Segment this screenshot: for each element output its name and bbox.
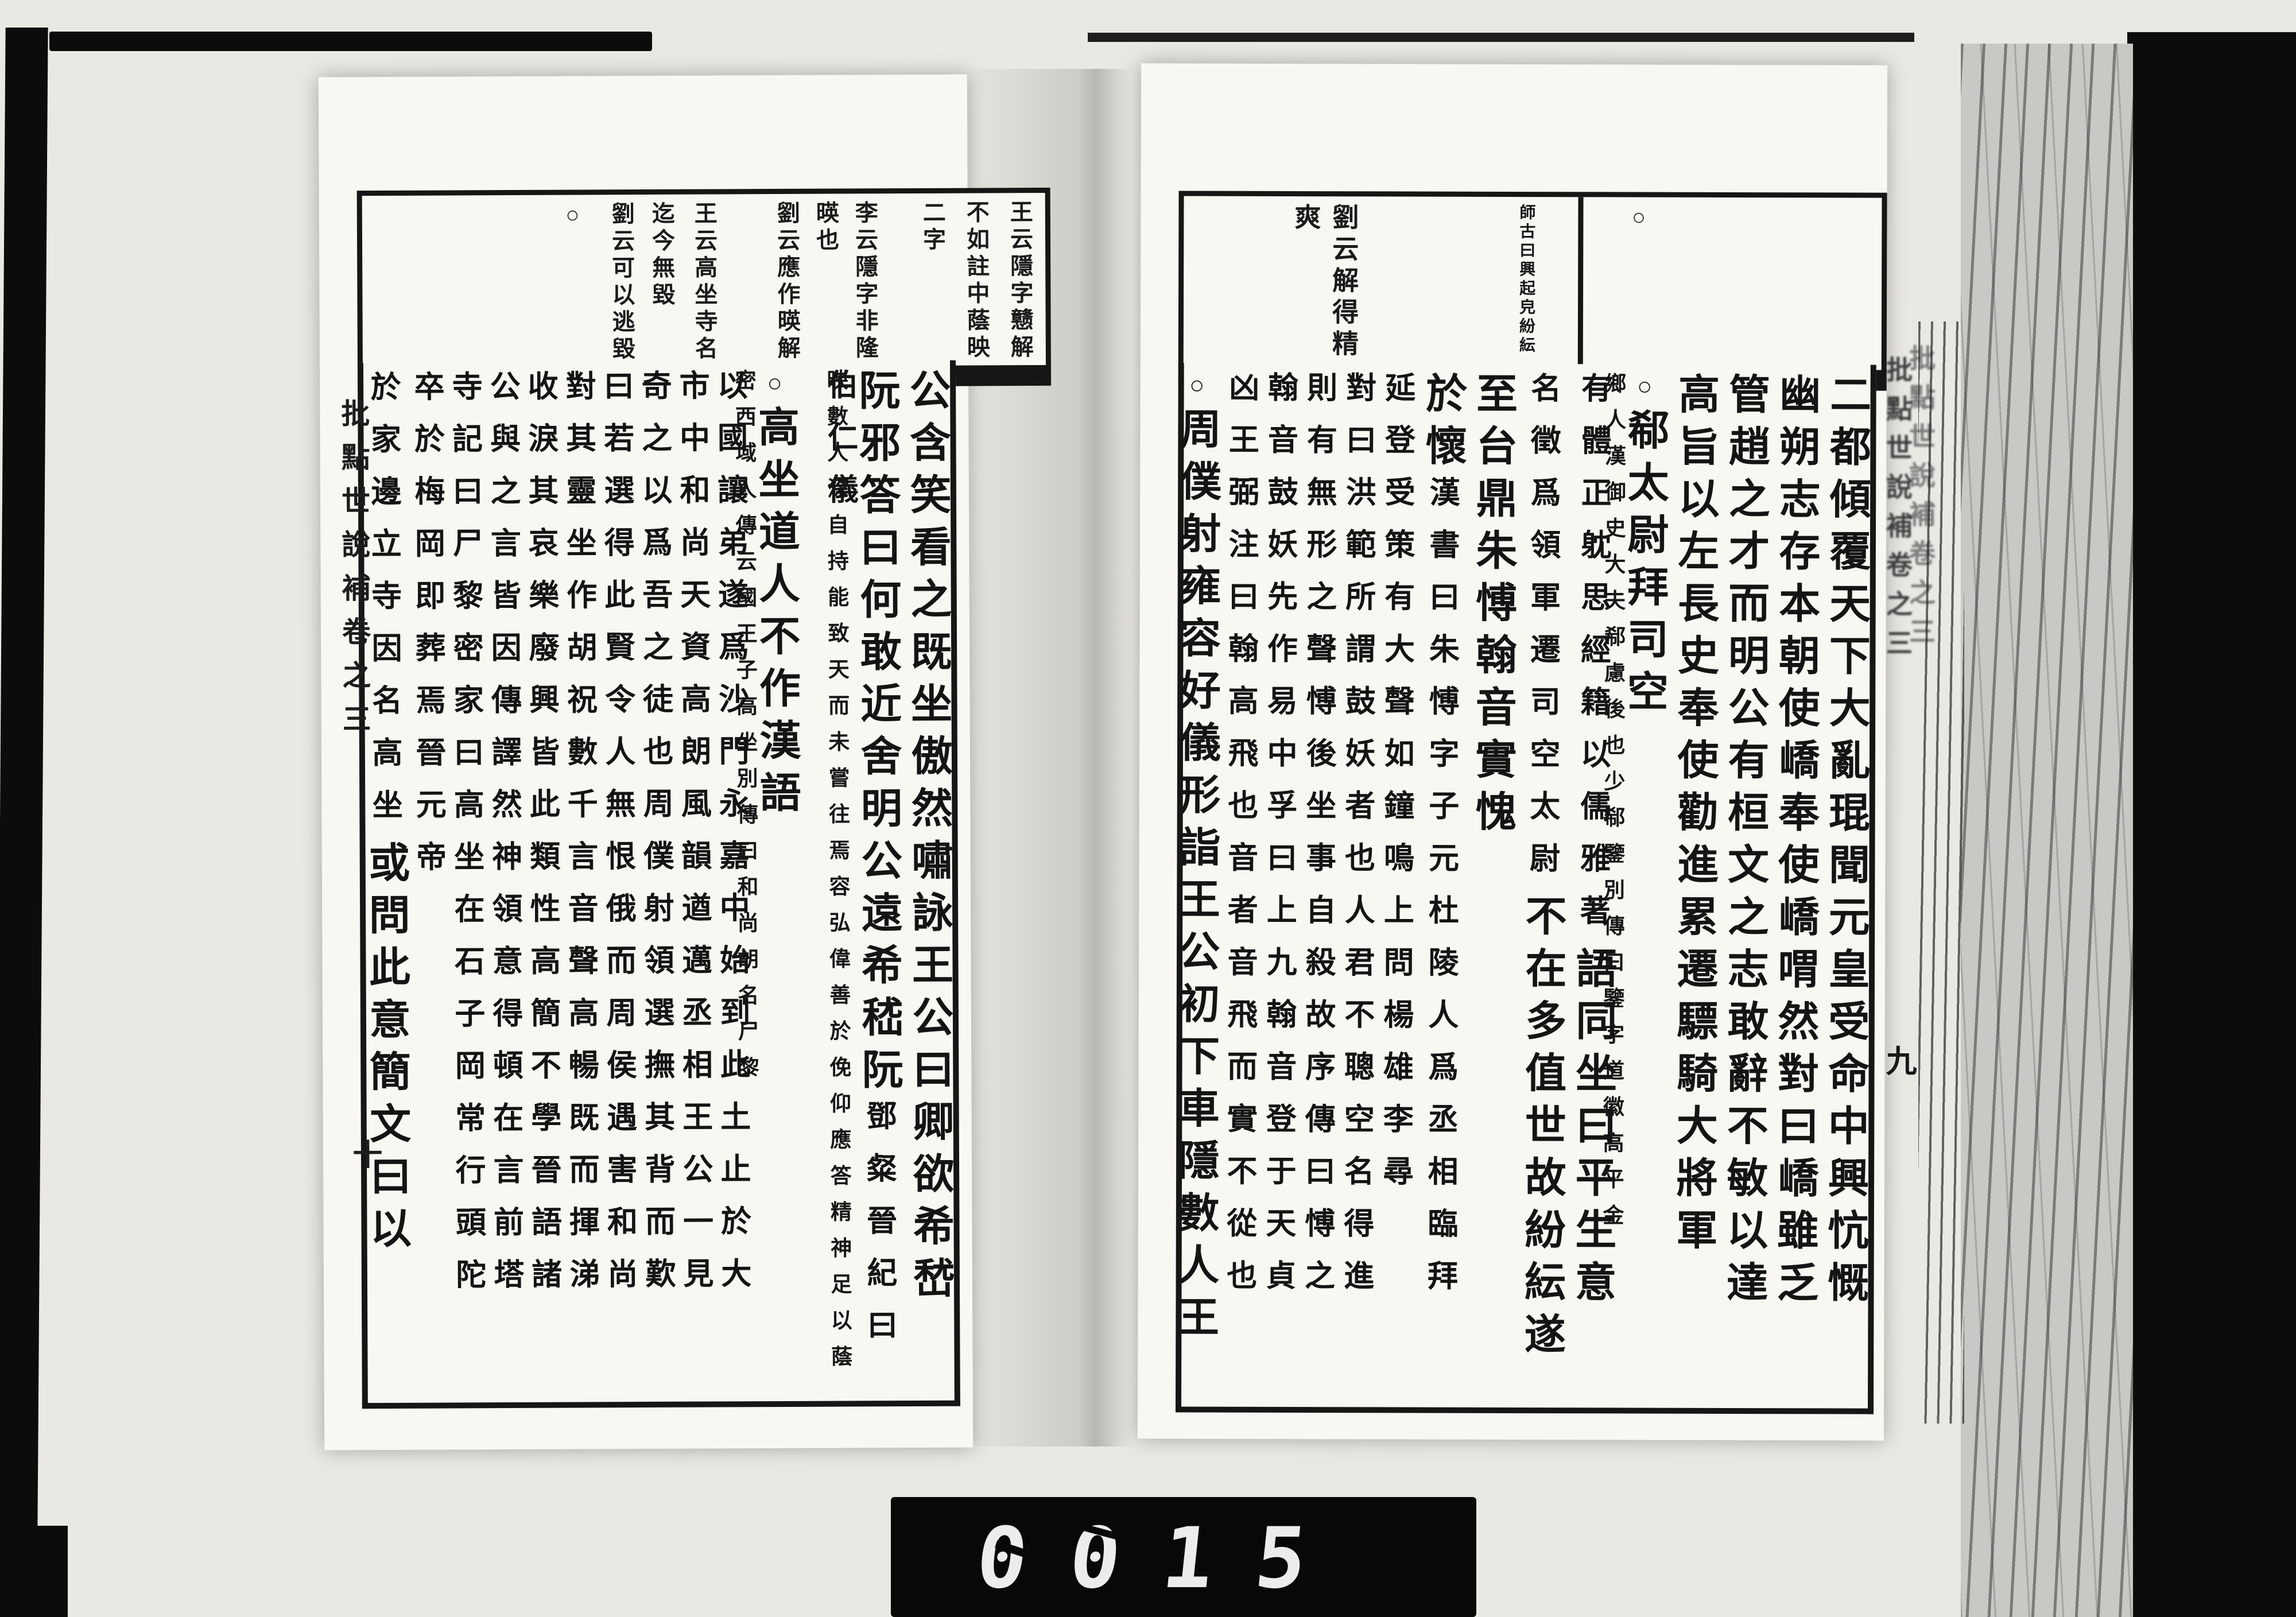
annotation-ring: ○ — [559, 201, 586, 227]
margin-annotation: 紛紜師古曰興起皃 — [1518, 204, 1538, 355]
right-folding-margin-title-ghost: 批點世說補卷之三 — [1901, 344, 1939, 657]
text-column: 市中和尚天資高朗風韻遒邁丞相王公一見 — [669, 370, 711, 1397]
text-column: 名徵爲領軍遷司空太尉不在多值世故紛紜遂 — [1511, 372, 1564, 1403]
previous-leaf-edge: 批點世說補卷之三 批點世說補卷之三 九 — [1876, 321, 1968, 1424]
commentary-segment: 對曰洪範所謂鼓妖者也人君不聰空名得進 — [1339, 371, 1375, 1312]
text-column: 幽朔志存本朝使嶠奉使嶠喟然對曰嶠雖乏 — [1763, 373, 1817, 1403]
margin-annotation: 王云隱字戆解 — [1003, 200, 1037, 362]
film-edge-right-area — [2127, 32, 2296, 1617]
commentary-segment: 市中和尚天資高朗風韻遒邁丞相王公一見 — [675, 370, 712, 1310]
main-text-segment: 至台鼎朱愽翰音實愧 — [1469, 372, 1516, 842]
margin-annotation: 李云隱字非隆 — [848, 200, 882, 362]
main-text-segment: 二都傾覆天下大亂琨聞元皇受命中興忼慨 — [1821, 373, 1869, 1313]
text-column: 對其靈坐作胡祝數千言音聲高暢既而揮涕 — [555, 370, 598, 1397]
text-column: 奇之以爲吾之徒也周僕射領選撫其背而歎 — [631, 370, 673, 1397]
commentary-segment: 卒於梅岡即葬焉晉元帝 — [410, 371, 445, 893]
main-text-segment: 管趙之才而明公有桓文之志敢辭不敏以達 — [1720, 373, 1768, 1313]
text-column: 公與之言皆因傳譯然神領意得頓在言前塔 — [479, 370, 522, 1398]
story-start-ring: ○ — [761, 369, 789, 405]
commentary-segment: 寺記曰尸黎密家曰高坐在石子岡常行頭陀 — [448, 370, 485, 1310]
interlinear-note-line: 映數人深自持能致天而未嘗往焉 — [820, 369, 848, 875]
commentary-segment: 公與之言皆因傳譯然神領意得頓在言前塔 — [486, 370, 523, 1310]
scan-streak-top-right — [1088, 33, 1914, 42]
main-text-segment: 不在多值世故紛紜遂 — [1518, 894, 1565, 1364]
text-column: 卒於梅岡即葬焉晉元帝 — [404, 371, 446, 1398]
main-text-segment: 或問此意簡文曰以 — [362, 841, 410, 1259]
text-column: 以國讓弟遂爲沙門永嘉中始到此土止於大 — [707, 369, 749, 1397]
text-column: 至台鼎朱愽翰音實愧 — [1460, 372, 1514, 1403]
commentary-segment: 以國讓弟遂爲沙門永嘉中始到此土止於大 — [713, 369, 750, 1309]
annotation-ring: ○ — [1625, 204, 1652, 230]
text-column: 凶王弼注曰翰高飛也音者音飛而實不從也 — [1215, 371, 1256, 1402]
main-text-segment: 郗太尉拜司空 — [1620, 408, 1667, 722]
annotation-band-divider — [1578, 197, 1584, 369]
main-text-segment: 高旨以左長史奉使勸進累遷驃騎大將軍 — [1670, 373, 1718, 1261]
text-column: 曰若選得此賢令人無恨俄而周侯遇害和尚 — [593, 370, 635, 1397]
commentary-segment: 名徵爲領軍遷司空太尉 — [1525, 372, 1560, 894]
commentary-segment: 有體正躭思經籍以儒雅著 — [1576, 372, 1611, 947]
frame-counter-band: 0015 — [891, 1497, 1476, 1617]
text-column: 管趙之才而明公有桓文之志敢辭不敏以達 — [1713, 373, 1766, 1403]
commentary-segment: 漢書曰朱愽字子元杜陵人爲丞相臨拜 — [1423, 476, 1459, 1312]
text-column: 阮邪答曰何敢近舍明公遠希嵇阮鄧粲晉紀曰伯仁儀 — [846, 369, 901, 1396]
right-page-text-block: 二都傾覆天下大亂琨聞元皇受命中興忼慨幽朔志存本朝使嶠奉使嶠喟然對曰嶠雖乏管趙之才… — [1176, 363, 1876, 1414]
text-column: 則有無形之聲愽後坐事自殺故序傳曰愽之 — [1293, 371, 1335, 1402]
margin-annotation: 迄今無毀 — [645, 201, 678, 309]
main-text-segment: 幽朔志存本朝使嶠奉使嶠喟然對曰嶠雖乏 — [1770, 373, 1818, 1313]
main-text-segment: 於懷 — [1419, 372, 1465, 476]
commentary-segment: 則有無形之聲愽後坐事自殺故序傳曰愽之 — [1300, 371, 1336, 1312]
margin-annotation: 王云高坐寺名 — [687, 201, 721, 363]
text-column: ○高坐道人不作漢語高坐別傳曰和尚胡名尸黎密西域人傳云國王子 — [744, 369, 800, 1397]
right-leaf-number: 九 — [1876, 1045, 1921, 1076]
margin-annotation: 劉云應作暎解 — [770, 201, 804, 363]
margin-annotation: 不如註中蔭映 — [959, 200, 993, 362]
margin-annotation-line: 紛紜 — [1518, 317, 1537, 355]
text-column: 對曰洪範所謂鼓妖者也人君不聰空名得進 — [1332, 371, 1374, 1402]
scanned-book-spread: ○紛紜師古曰興起皃劉云解得精爽 二都傾覆天下大亂琨聞元皇受命中興忼慨幽朔志存本朝… — [0, 0, 2296, 1617]
right-page-margin-annotations: ○紛紜師古曰興起皃劉云解得精爽 — [1178, 191, 1887, 390]
text-column: 高旨以左長史奉使勸進累遷驃騎大將軍 — [1662, 373, 1716, 1403]
margin-annotation: 劉云可以逃毀 — [604, 201, 638, 363]
margin-annotation: 暎也 — [809, 200, 842, 254]
main-text-segment: 高坐道人不作漢語 — [751, 405, 799, 823]
left-page-text-block: 公含笑看之既坐傲然嘯詠王公曰卿欲希嵆阮邪答曰何敢近舍明公遠希嵇阮鄧粲晉紀曰伯仁儀… — [358, 360, 960, 1409]
text-column: 翰音鼓妖先作易中孚曰上九翰音登于天貞 — [1254, 371, 1296, 1402]
main-text-segment: 周僕射雍容好儀形詣王公初下車隱數人王 — [1171, 407, 1219, 1347]
margin-annotation: 二字 — [916, 200, 949, 254]
scan-streak-top-left — [49, 32, 652, 51]
film-edge-left-bar — [0, 28, 48, 1617]
page-stack-edges — [1961, 44, 2133, 1617]
main-text-segment: 語同坐曰平生意 — [1568, 947, 1615, 1312]
left-leaf-number: 十 — [343, 1139, 386, 1169]
text-column: 寺記曰尸黎密家曰高坐在石子岡常行頭陀 — [441, 370, 484, 1398]
text-column: 容弘偉善於俛仰應答精神足以蔭映數人深自持能致天而未嘗往焉 — [795, 369, 850, 1396]
story-start-ring: ○ — [1631, 373, 1659, 409]
right-page: ○紛紜師古曰興起皃劉云解得精爽 二都傾覆天下大亂琨聞元皇受命中興忼慨幽朔志存本朝… — [1138, 63, 1887, 1440]
text-column: ○郗太尉拜司空郗鑒別傳曰鑒字道徽高平金鄉人漢御史大夫郗慮後也少 — [1612, 372, 1665, 1403]
commentary-segment: 翰音鼓妖先作易中孚曰上九翰音登于天貞 — [1261, 371, 1297, 1312]
margin-annotation: 劉云解得精爽 — [1286, 203, 1363, 369]
commentary-segment: 收淚其哀樂廢興皆此類性高簡不學晉語諸 — [523, 370, 561, 1310]
text-column: 延登受策有大聲如鐘鳴上問楊雄李尋 — [1371, 371, 1413, 1402]
story-start-ring: ○ — [1183, 371, 1211, 407]
commentary-segment: 對其靈坐作胡祝數千言音聲高暢既而揮涕 — [561, 370, 599, 1310]
interlinear-note-line: 容弘偉善於俛仰應答精神足以蔭 — [823, 875, 850, 1381]
left-page-margin-annotations: 王云隱字戆解不如註中蔭映二字李云隱字非隆暎也劉云應作暎解王云高坐寺名迄今無毀劉云… — [357, 188, 1051, 389]
commentary-segment: 凶王弼注曰翰高飛也音者音飛而實不從也 — [1222, 371, 1258, 1312]
margin-annotation-line: 師古曰興起皃 — [1518, 204, 1538, 317]
text-column: ○周僕射雍容好儀形詣王公初下車隱數人王 — [1163, 371, 1217, 1402]
commentary-segment: 延登受策有大聲如鐘鳴上問楊雄李尋 — [1379, 371, 1414, 1207]
commentary-segment: 曰若選得此賢令人無恨俄而周侯遇害和尚 — [599, 370, 637, 1310]
text-column: 二都傾覆天下大亂琨聞元皇受命中興忼慨 — [1814, 373, 1867, 1403]
text-column: 收淚其哀樂廢興皆此類性高簡不學晉語諸 — [517, 370, 560, 1398]
commentary-segment: 奇之以爲吾之徒也周僕射領選撫其背而歎 — [637, 370, 674, 1310]
left-page: 王云隱字戆解不如註中蔭映二字李云隱字非隆暎也劉云應作暎解王云高坐寺名迄今無毀劉云… — [319, 75, 973, 1451]
interlinear-note-pair: 容弘偉善於俛仰應答精神足以蔭映數人深自持能致天而未嘗往焉 — [820, 369, 850, 1381]
text-column: 於懷漢書曰朱愽字子元杜陵人爲丞相臨拜 — [1410, 372, 1463, 1403]
left-folding-margin-title: 批點世說補卷之三 — [332, 398, 375, 747]
main-text-segment: 阮邪答曰何敢近舍明公遠希嵇阮 — [852, 369, 902, 1100]
scan-shadow-bottom-left — [0, 1526, 68, 1617]
main-text-segment: 公含笑看之既坐傲然嘯詠王公曰卿欲希嵆 — [903, 369, 953, 1309]
text-column: 有體正躭思經籍以儒雅著語同坐曰平生意 — [1561, 372, 1615, 1403]
text-column: 公含笑看之既坐傲然嘯詠王公曰卿欲希嵆 — [896, 369, 951, 1396]
